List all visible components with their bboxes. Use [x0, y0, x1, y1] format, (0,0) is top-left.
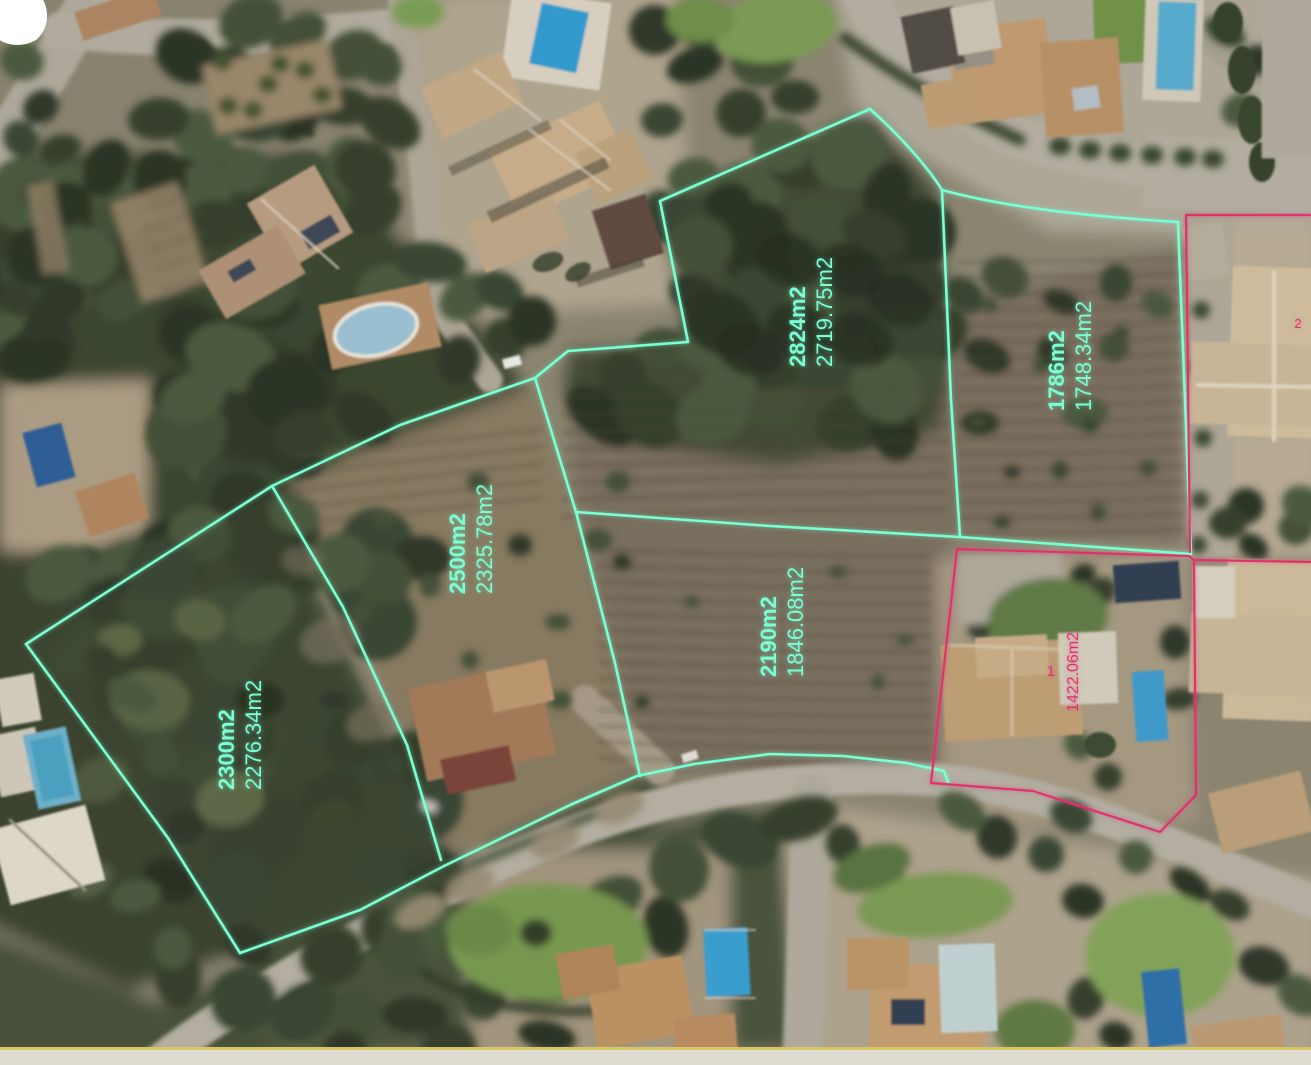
svg-text:2719.75m2: 2719.75m2	[812, 257, 837, 367]
svg-text:2500m2: 2500m2	[445, 513, 470, 594]
svg-text:1748.34m2: 1748.34m2	[1071, 301, 1096, 411]
svg-text:2190m2: 2190m2	[756, 596, 781, 677]
svg-text:1786m2: 1786m2	[1044, 330, 1069, 411]
svg-text:2276.34m2: 2276.34m2	[241, 680, 266, 790]
svg-text:1846.08m2: 1846.08m2	[783, 567, 808, 677]
svg-text:2824m2: 2824m2	[785, 286, 810, 367]
svg-text:2325.78m2: 2325.78m2	[472, 484, 497, 594]
svg-text:2300m2: 2300m2	[214, 709, 239, 790]
svg-text:1422.06m2: 1422.06m2	[1065, 632, 1082, 712]
svg-text:2: 2	[1294, 316, 1301, 331]
svg-text:1: 1	[1047, 663, 1055, 680]
